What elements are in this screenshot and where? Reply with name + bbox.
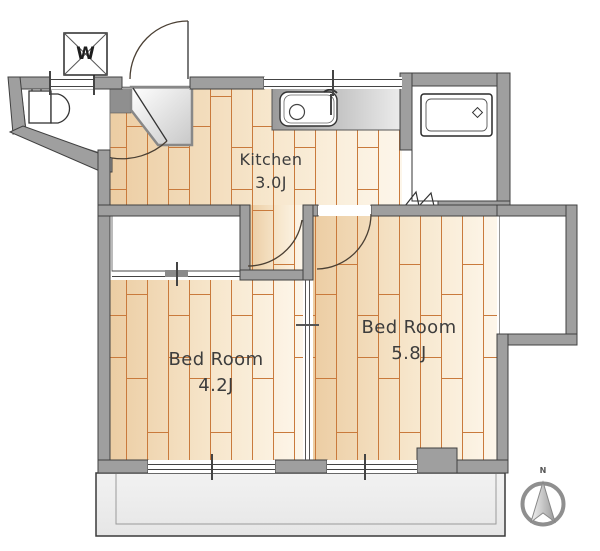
sink-basin [280,92,337,126]
floor-plan-canvas: Kitchen 3.0J Bed Room 4.2J Bed Room 5.8J… [0,0,600,551]
closet-right [497,205,577,345]
kitchen-counter [272,87,402,130]
compass-north-label: N [523,466,563,475]
wall-bottom-2 [275,460,327,473]
wall-top-kitchen [190,77,264,89]
bedroom-5-8-floor [313,216,497,461]
pillar [417,448,457,473]
wall-bottom-1 [98,460,148,473]
wall-left [98,150,110,473]
wall-bed2-door-stub [313,205,318,216]
bed2-door-gap [318,206,371,215]
wall-bed2-top [371,205,497,216]
bathroom [400,73,510,216]
wall-divider-upper [303,205,313,280]
wall-closet-top [98,205,250,216]
wall-corridor-bottom [240,270,313,280]
balcony [96,473,505,536]
bathroom-wall-top [400,73,510,86]
compass [523,482,564,525]
wall-closet-right [240,205,250,272]
wall-right-lower [497,334,508,473]
bathtub [421,94,492,136]
washer-label: W [64,33,107,75]
wall-top-toilet-right [94,77,122,89]
floor-plan-drawing [0,0,600,551]
bathroom-wall-right [497,73,510,216]
bedroom-4-2-floor [110,280,303,461]
entry-door [130,21,188,79]
